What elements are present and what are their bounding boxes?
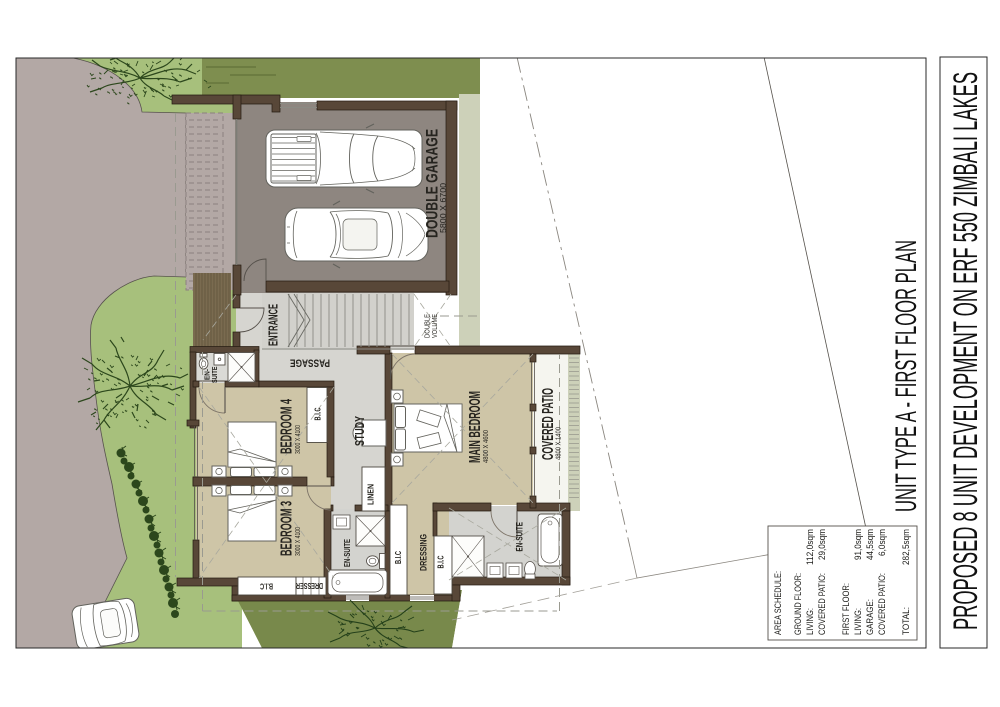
svg-text:B.I.C: B.I.C xyxy=(437,555,446,568)
svg-text:DRESSER: DRESSER xyxy=(296,581,323,590)
svg-text:3000 X 4100: 3000 X 4100 xyxy=(293,425,302,454)
svg-text:UNIT TYPE A - FIRST FLOOR PL: UNIT TYPE A - FIRST FLOOR PLAN xyxy=(890,240,923,512)
svg-text:5800 X 6700: 5800 X 6700 xyxy=(439,182,448,233)
svg-text:GARAGE:: GARAGE: xyxy=(865,599,875,635)
svg-text:44,5sqm: 44,5sqm xyxy=(865,529,875,560)
svg-text:4800 X 1400: 4800 X 1400 xyxy=(554,427,563,460)
svg-text:112,0sqm: 112,0sqm xyxy=(805,529,815,565)
svg-text:GROUND FLOOR:: GROUND FLOOR: xyxy=(793,573,803,635)
svg-text:LIVING:: LIVING: xyxy=(853,608,863,635)
svg-text:B.I.C: B.I.C xyxy=(260,582,273,591)
svg-text:EN-SUITE: EN-SUITE xyxy=(342,539,352,567)
svg-text:3000 X 4100: 3000 X 4100 xyxy=(293,527,302,556)
svg-text:PASSAGE: PASSAGE xyxy=(290,357,330,369)
svg-text:29,0sqm: 29,0sqm xyxy=(817,529,827,560)
svg-text:PROPOSED 8 UNIT DEVELOPMENT ON: PROPOSED 8 UNIT DEVELOPMENT ON ERF 550 Z… xyxy=(947,72,985,630)
svg-text:FIRST FLOOR:: FIRST FLOOR: xyxy=(841,583,851,635)
svg-text:EN-SUITE: EN-SUITE xyxy=(515,522,526,552)
svg-text:B.I.C: B.I.C xyxy=(314,407,323,420)
svg-text:SUITE: SUITE xyxy=(210,367,219,384)
svg-text:B.I.C: B.I.C xyxy=(394,551,403,564)
svg-text:ENTRANCE: ENTRANCE xyxy=(267,304,281,346)
svg-text:LIVING:: LIVING: xyxy=(805,608,815,635)
svg-text:TOTAL:: TOTAL: xyxy=(901,607,911,635)
svg-text:6,0sqm: 6,0sqm xyxy=(877,529,887,556)
svg-text:COVERED PATIO:: COVERED PATIO: xyxy=(877,573,887,635)
svg-text:4800 X 4600: 4800 X 4600 xyxy=(481,430,490,463)
svg-text:282,5sqm: 282,5sqm xyxy=(901,529,911,565)
svg-text:LINEN: LINEN xyxy=(367,484,376,505)
svg-text:AREA SCHEDULE:: AREA SCHEDULE: xyxy=(773,571,783,635)
svg-text:DRESSING: DRESSING xyxy=(419,534,430,571)
svg-text:VOLUME: VOLUME xyxy=(430,314,439,338)
svg-text:91,0sqm: 91,0sqm xyxy=(853,529,863,560)
svg-text:COVERED PATIO:: COVERED PATIO: xyxy=(817,573,827,635)
svg-text:STUDY: STUDY xyxy=(353,416,367,446)
